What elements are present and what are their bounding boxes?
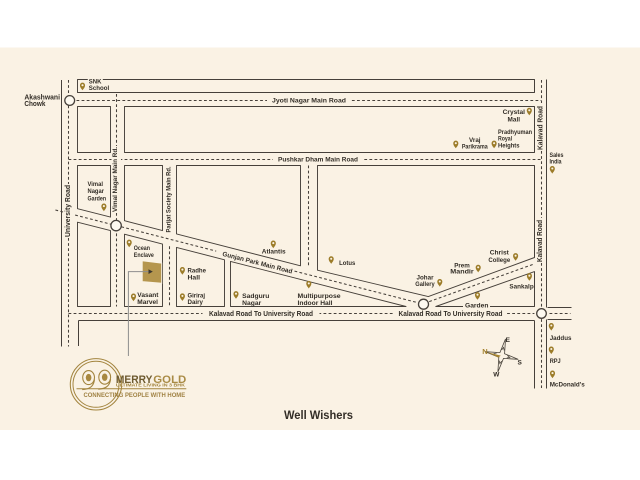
svg-text:Vimal: Vimal bbox=[88, 181, 104, 188]
svg-text:Jyoti Nagar Main Road: Jyoti Nagar Main Road bbox=[272, 98, 346, 105]
svg-text:Nagar: Nagar bbox=[88, 188, 105, 195]
svg-text:Heights: Heights bbox=[498, 142, 520, 149]
svg-text:University Road: University Road bbox=[65, 185, 72, 237]
svg-text:Mall: Mall bbox=[508, 116, 521, 123]
svg-text:Dairy: Dairy bbox=[188, 299, 204, 306]
svg-text:Mandir: Mandir bbox=[450, 269, 474, 276]
svg-text:Atlantis: Atlantis bbox=[262, 248, 286, 255]
svg-text:Enclave: Enclave bbox=[134, 252, 154, 259]
svg-text:Kalavad Road To University Roa: Kalavad Road To University Road bbox=[399, 309, 503, 318]
svg-text:Well Wishers: Well Wishers bbox=[284, 410, 353, 422]
svg-text:Kalavad Road: Kalavad Road bbox=[538, 106, 545, 150]
svg-text:Chowk: Chowk bbox=[24, 101, 45, 108]
svg-text:Parijat Society Main Rd.: Parijat Society Main Rd. bbox=[166, 166, 173, 232]
svg-text:Vimal Nagar Main Rd.: Vimal Nagar Main Rd. bbox=[112, 147, 119, 212]
svg-text:Jaddus: Jaddus bbox=[550, 335, 572, 342]
svg-text:RPJ: RPJ bbox=[550, 358, 561, 365]
svg-text:Parikrama: Parikrama bbox=[462, 144, 488, 151]
svg-text:Nagar: Nagar bbox=[242, 300, 262, 307]
svg-text:CONNECTING PEOPLE WITH HOME: CONNECTING PEOPLE WITH HOME bbox=[84, 393, 186, 399]
svg-text:Sankalp: Sankalp bbox=[509, 284, 533, 291]
svg-text:S: S bbox=[518, 360, 523, 367]
svg-text:Kalavad Road To University Roa: Kalavad Road To University Road bbox=[209, 309, 313, 318]
svg-text:W: W bbox=[493, 372, 500, 379]
svg-text:Crystal: Crystal bbox=[503, 109, 526, 116]
svg-text:India: India bbox=[550, 159, 562, 166]
svg-text:School: School bbox=[89, 85, 110, 92]
svg-text:Christ: Christ bbox=[490, 250, 510, 257]
svg-text:Garden: Garden bbox=[88, 195, 107, 202]
svg-text:Indoor Hall: Indoor Hall bbox=[298, 300, 333, 307]
svg-text:ULTIMATE LIVING IN 3 BHK: ULTIMATE LIVING IN 3 BHK bbox=[116, 383, 185, 388]
svg-text:Sadguru: Sadguru bbox=[242, 293, 269, 300]
svg-text:N: N bbox=[482, 347, 487, 356]
svg-text:Lotus: Lotus bbox=[339, 260, 356, 267]
svg-text:Garden: Garden bbox=[465, 303, 488, 310]
svg-text:Hall: Hall bbox=[188, 275, 201, 282]
svg-text:E: E bbox=[506, 337, 511, 344]
svg-text:Marvel: Marvel bbox=[137, 299, 158, 306]
svg-text:Gallery: Gallery bbox=[415, 281, 435, 288]
svg-text:Ocean: Ocean bbox=[134, 245, 150, 252]
svg-text:McDonald's: McDonald's bbox=[550, 382, 586, 389]
svg-text:College: College bbox=[488, 257, 510, 264]
svg-text:Pushkar Dham Main Road: Pushkar Dham Main Road bbox=[278, 157, 358, 164]
svg-text:Kalavad Road: Kalavad Road bbox=[537, 220, 544, 262]
